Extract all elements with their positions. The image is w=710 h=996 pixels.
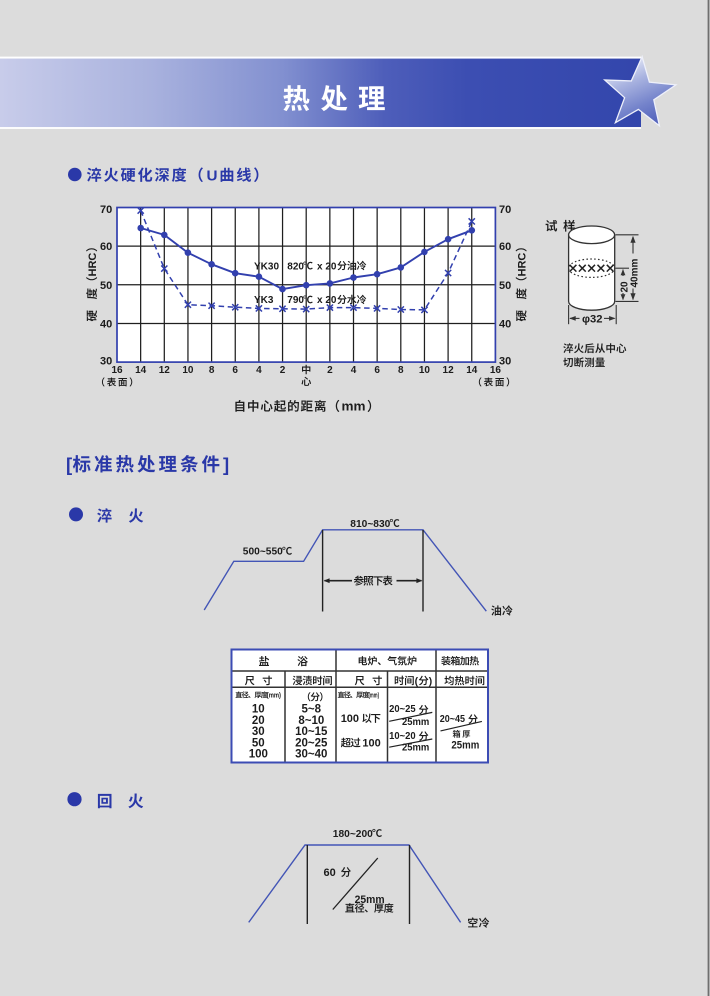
svg-text:10~15: 10~15: [295, 726, 328, 738]
svg-text:100: 100: [249, 748, 268, 760]
svg-text:60: 60: [324, 867, 336, 879]
svg-text:10: 10: [419, 365, 431, 376]
svg-text:x 20: x 20: [317, 261, 337, 272]
svg-text:20~25: 20~25: [389, 703, 416, 715]
svg-text:500~550: 500~550: [243, 547, 283, 558]
svg-text:8~10: 8~10: [298, 715, 324, 727]
svg-text:12: 12: [443, 365, 455, 376]
svg-text:60: 60: [100, 241, 112, 253]
svg-text:14: 14: [466, 365, 478, 376]
svg-text:70: 70: [499, 204, 511, 216]
svg-text:810~830: 810~830: [350, 519, 390, 530]
svg-text:10~20: 10~20: [389, 730, 416, 742]
svg-text:25mm: 25mm: [451, 739, 479, 751]
svg-text:50: 50: [100, 280, 112, 292]
svg-text:50: 50: [499, 280, 511, 292]
svg-text:8: 8: [209, 365, 215, 376]
svg-text:U: U: [207, 168, 218, 185]
svg-text:100: 100: [341, 713, 359, 725]
svg-text:8: 8: [398, 365, 404, 376]
svg-text:60: 60: [499, 241, 511, 253]
svg-text:40mm: 40mm: [629, 258, 640, 287]
svg-text:(: (: [415, 676, 419, 687]
svg-text:25mm: 25mm: [402, 716, 429, 728]
svg-text:YK30: YK30: [254, 261, 279, 272]
svg-text:HRC: HRC: [517, 253, 529, 277]
svg-text:4: 4: [351, 365, 357, 376]
svg-text:6: 6: [232, 365, 238, 376]
svg-text:20: 20: [252, 715, 265, 727]
svg-text:40: 40: [100, 319, 112, 331]
svg-text:6: 6: [374, 365, 380, 376]
svg-text:5~8: 5~8: [302, 703, 322, 715]
svg-text:): ): [429, 676, 432, 687]
svg-text:]: ]: [223, 454, 229, 475]
svg-text:10: 10: [252, 703, 265, 715]
svg-text:100: 100: [362, 738, 380, 750]
svg-text:2: 2: [280, 365, 286, 376]
svg-text:70: 70: [100, 204, 112, 216]
svg-text:790: 790: [287, 295, 304, 306]
svg-text:16: 16: [490, 365, 502, 376]
svg-text:14: 14: [135, 365, 147, 376]
svg-text:10: 10: [182, 365, 194, 376]
svg-text:16: 16: [111, 365, 123, 376]
svg-text:(mm): (mm): [369, 691, 380, 700]
svg-text:mm: mm: [342, 400, 366, 414]
svg-text:2: 2: [327, 365, 333, 376]
svg-text:4: 4: [256, 365, 262, 376]
svg-text:180~200: 180~200: [333, 829, 373, 840]
svg-text:YK3: YK3: [254, 295, 274, 306]
svg-text:HRC: HRC: [87, 253, 99, 277]
svg-text:[: [: [66, 454, 72, 475]
svg-text:x 20: x 20: [317, 295, 337, 306]
svg-text:20: 20: [619, 281, 630, 293]
svg-text:820: 820: [287, 261, 304, 272]
svg-text:30~40: 30~40: [295, 748, 327, 760]
svg-text:20~45: 20~45: [440, 713, 465, 725]
svg-text:φ32: φ32: [582, 313, 603, 325]
svg-text:30: 30: [252, 726, 265, 738]
svg-text:40: 40: [499, 319, 511, 331]
svg-text:(mm): (mm): [267, 691, 282, 700]
svg-text:12: 12: [159, 365, 171, 376]
svg-text:25mm: 25mm: [402, 742, 429, 754]
